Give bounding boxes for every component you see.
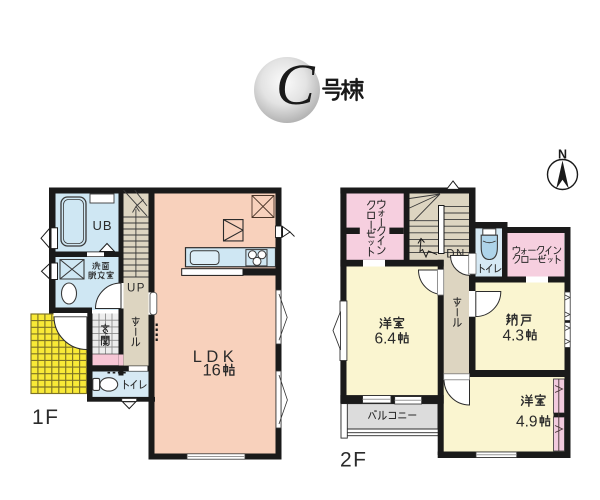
svg-text:1F: 1F [32,406,60,429]
svg-text:UP: UP [127,283,146,295]
svg-text:C: C [276,52,316,117]
svg-text:4.3: 4.3 [503,328,525,345]
svg-text:UB: UB [92,218,112,233]
svg-text:6.4: 6.4 [375,331,397,348]
svg-text:16: 16 [203,362,221,380]
svg-text:4.9: 4.9 [516,414,538,431]
svg-text:N: N [558,148,567,162]
svg-text:2F: 2F [340,449,368,472]
